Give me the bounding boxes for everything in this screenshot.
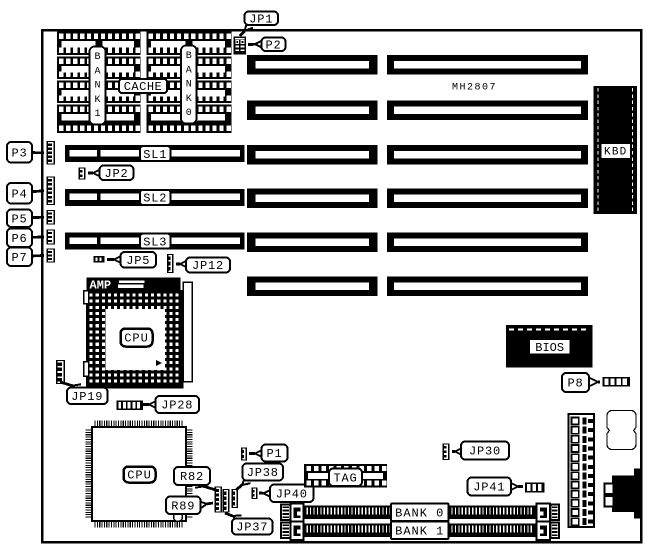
svg-text:P1: P1 xyxy=(266,447,282,461)
svg-text:JP37: JP37 xyxy=(236,521,268,535)
svg-text:JP19: JP19 xyxy=(71,390,103,404)
svg-text:JP28: JP28 xyxy=(161,399,193,413)
svg-text:A: A xyxy=(94,66,100,77)
svg-text:P5: P5 xyxy=(11,212,27,226)
svg-text:JP1: JP1 xyxy=(249,12,273,26)
svg-text:BANK 0: BANK 0 xyxy=(395,506,444,520)
svg-text:TAG: TAG xyxy=(333,471,357,485)
svg-text:P4: P4 xyxy=(11,187,27,201)
svg-text:P6: P6 xyxy=(11,232,27,246)
svg-text:N: N xyxy=(186,80,192,91)
svg-text:P8: P8 xyxy=(567,377,583,391)
svg-text:P2: P2 xyxy=(265,38,281,52)
svg-text:A: A xyxy=(186,65,192,76)
svg-text:JP5: JP5 xyxy=(126,254,150,268)
svg-text:BIOS: BIOS xyxy=(535,341,564,355)
svg-text:JP40: JP40 xyxy=(276,487,308,501)
svg-text:N: N xyxy=(94,81,100,92)
svg-text:B: B xyxy=(94,52,100,63)
svg-text:JP2: JP2 xyxy=(104,167,128,181)
svg-text:JP41: JP41 xyxy=(473,481,505,495)
svg-text:R82: R82 xyxy=(180,470,204,484)
svg-text:JP30: JP30 xyxy=(469,445,501,459)
svg-text:K: K xyxy=(94,95,100,106)
svg-text:1: 1 xyxy=(94,109,100,120)
svg-text:JP12: JP12 xyxy=(192,259,224,273)
svg-text:0: 0 xyxy=(186,108,192,119)
svg-text:MH2807: MH2807 xyxy=(452,83,497,94)
svg-text:JP38: JP38 xyxy=(247,466,279,480)
svg-text:B: B xyxy=(186,51,192,62)
svg-text:P7: P7 xyxy=(11,251,27,265)
svg-text:SL2: SL2 xyxy=(143,191,167,205)
svg-text:P3: P3 xyxy=(11,146,27,160)
svg-text:BANK 1: BANK 1 xyxy=(395,524,444,538)
svg-text:SL3: SL3 xyxy=(143,235,167,249)
svg-text:CPU: CPU xyxy=(124,332,149,346)
svg-text:CACHE: CACHE xyxy=(124,80,163,94)
svg-text:CPU: CPU xyxy=(127,469,152,483)
svg-text:K: K xyxy=(186,94,192,105)
svg-text:KBD: KBD xyxy=(604,147,627,159)
svg-text:SL1: SL1 xyxy=(143,148,167,162)
svg-text:R89: R89 xyxy=(171,499,195,513)
